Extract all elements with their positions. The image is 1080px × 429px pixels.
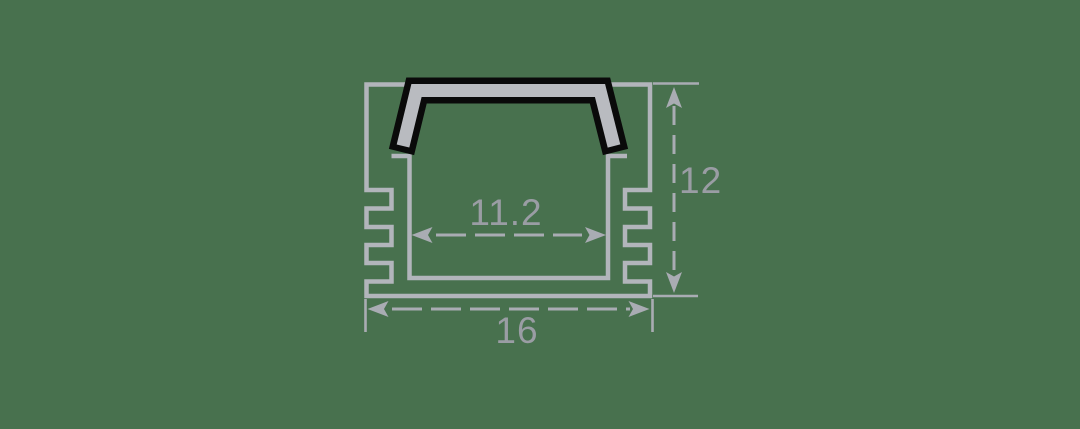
drawing-canvas: 11.2 16 12 [0,0,1080,429]
inner-width-label: 11.2 [469,192,542,233]
cover-outline-path [402,91,616,153]
dimension-inner-width: 11.2 [412,192,607,243]
profile-drawing: 11.2 16 12 [0,0,1080,429]
arrow-right-icon [585,227,606,243]
arrow-right-icon [629,301,650,317]
dimension-outer-width: 16 [366,299,653,351]
height-label: 12 [679,160,722,201]
outer-width-label: 16 [495,310,538,351]
arrow-down-icon [666,272,682,293]
arrow-left-icon [412,227,433,243]
dimension-height: 12 [653,84,722,297]
diffuser-cover [402,91,616,153]
arrow-left-icon [368,301,389,317]
arrow-up-icon [666,87,682,108]
